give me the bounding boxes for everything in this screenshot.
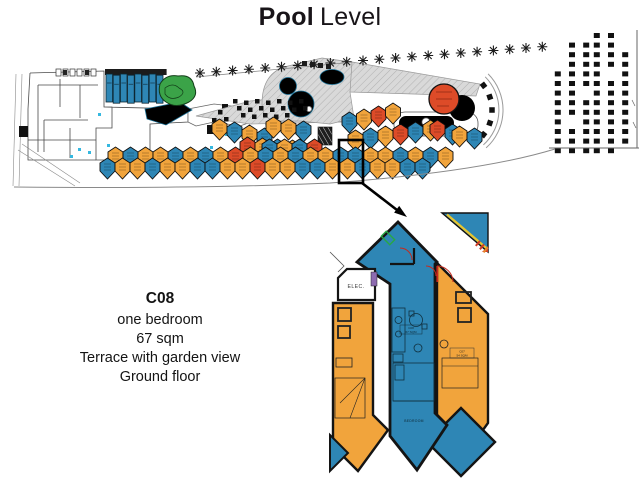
bedroom-label: BEDROOM [404, 419, 424, 423]
pool-level-page: C07 54 SQM [0, 0, 640, 480]
pool-left [145, 102, 192, 125]
walkway-corner-piece [442, 213, 488, 252]
unit-tag-area: 67 SQM [405, 330, 417, 334]
unit-floor: Ground floor [20, 368, 300, 387]
elec-label: ELEC. [348, 284, 365, 290]
callout-arrow [362, 183, 407, 217]
neighbor-tag-area: 54 SQM [456, 354, 468, 358]
title-regular: Level [320, 3, 381, 31]
unit-area: 67 sqm [20, 330, 300, 349]
pool-top [320, 70, 344, 85]
site-plan [13, 30, 639, 188]
plan-canvas: C07 54 SQM [0, 0, 640, 480]
title-bold: Pool [259, 3, 314, 31]
unit-type: one bedroom [20, 311, 300, 330]
green-garden-block [159, 76, 195, 106]
blue-rowhouse-block [105, 69, 167, 103]
parking-grid [555, 33, 628, 153]
unit-feature: Terrace with garden view [20, 349, 300, 368]
page-title: PoolLevel [0, 3, 640, 32]
unit-code: C08 [20, 289, 300, 308]
round-building [429, 84, 459, 114]
pool-round-small [280, 78, 297, 95]
elec-room: ELEC. [338, 269, 377, 300]
unit-info: C08 one bedroom 67 sqm Terrace with gard… [20, 289, 300, 387]
unit-detail-plan: C07 54 SQM [330, 213, 495, 476]
